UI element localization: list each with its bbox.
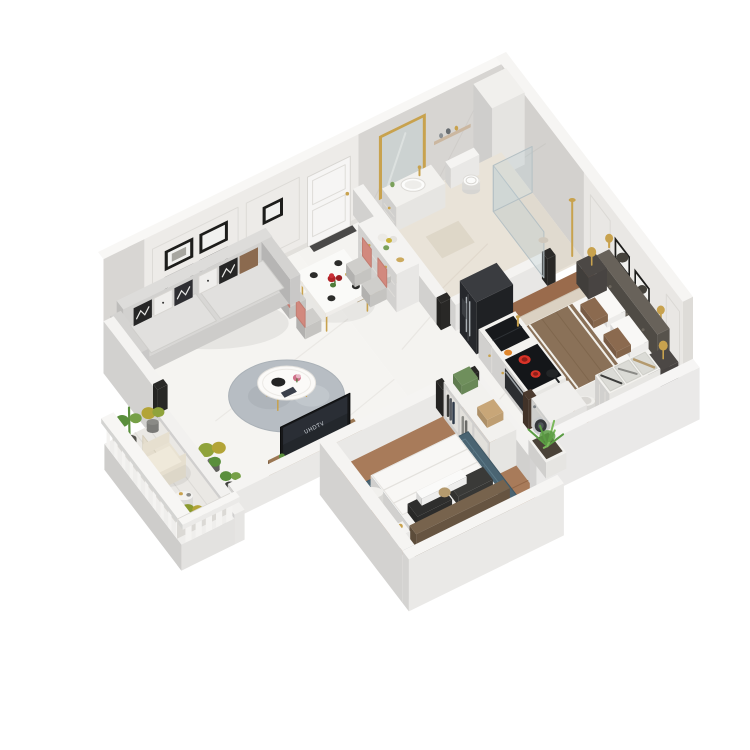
floorplan-scene-canvas: UHDTV [0, 0, 750, 750]
apartment-3d-floorplan-render: UHDTV [0, 0, 750, 750]
